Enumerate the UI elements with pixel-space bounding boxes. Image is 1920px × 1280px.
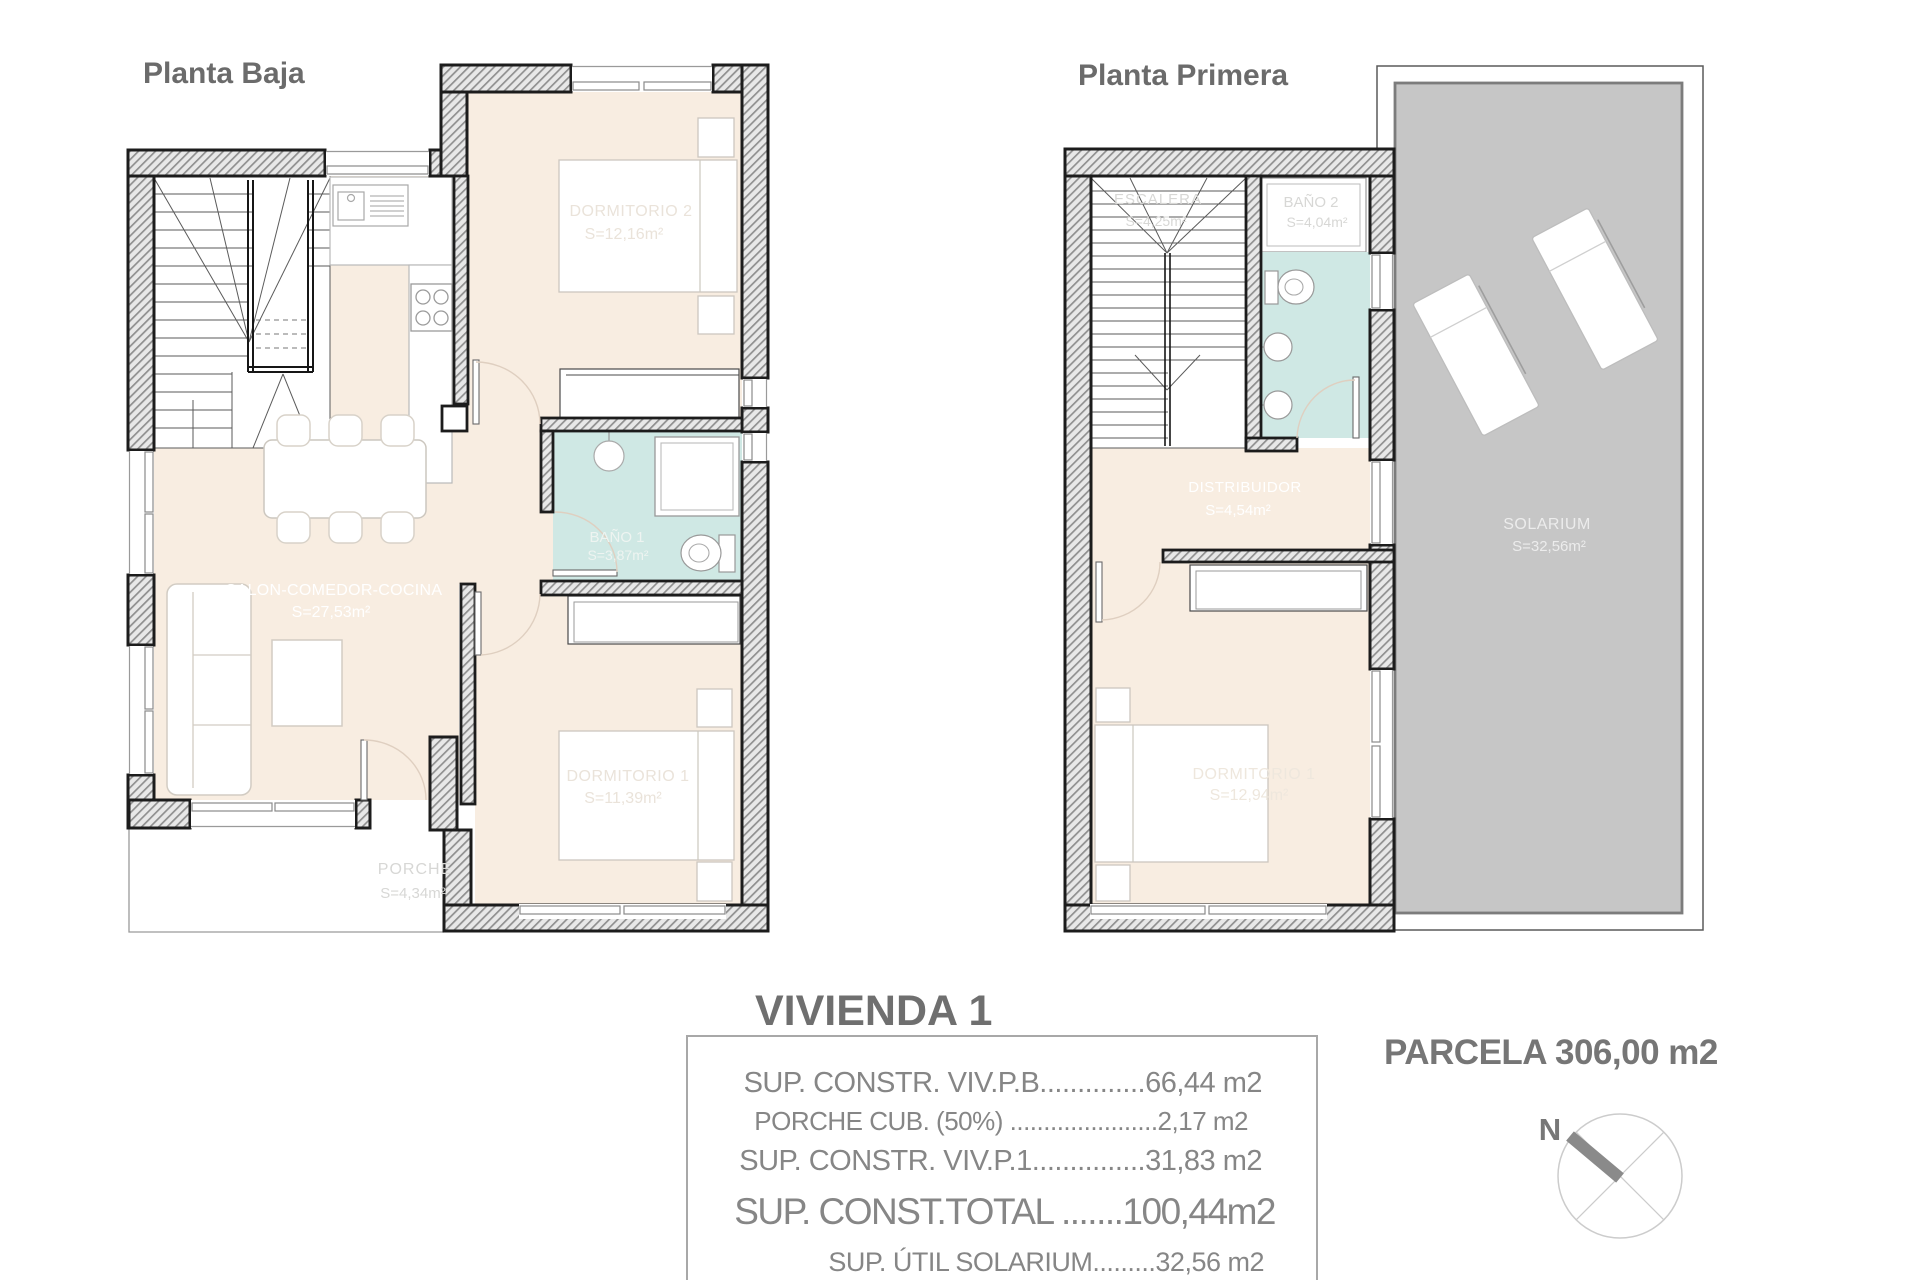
svg-text:S=12,94m²: S=12,94m² [1210,787,1289,804]
svg-text:DISTRIBUIDOR: DISTRIBUIDOR [1188,479,1302,496]
svg-text:PORCHE: PORCHE [378,861,452,878]
svg-text:S=3,87m²: S=3,87m² [587,547,648,563]
svg-text:S=11,39m²: S=11,39m² [584,790,662,807]
svg-text:SUP. CONSTR. VIV.P.B..........: SUP. CONSTR. VIV.P.B..............66,44 … [744,1067,1262,1099]
svg-text:DORMITORIO 1: DORMITORIO 1 [1192,766,1315,783]
svg-text:PORCHE CUB. (50%) ............: PORCHE CUB. (50%) ......................… [754,1106,1248,1136]
svg-text:Planta Primera: Planta Primera [1078,59,1288,92]
svg-text:S=12,16m²: S=12,16m² [585,226,664,243]
svg-text:S=4,04m²: S=4,04m² [1286,214,1347,230]
svg-text:DORMITORIO 1: DORMITORIO 1 [566,768,689,785]
svg-text:SOLARIUM: SOLARIUM [1503,516,1591,533]
svg-text:PARCELA 306,00 m2: PARCELA 306,00 m2 [1384,1033,1718,1072]
svg-text:S=4,25m²: S=4,25m² [1125,213,1186,229]
svg-text:DORMITORIO 2: DORMITORIO 2 [569,203,692,220]
svg-text:SUP. CONST.TOTAL .......100,44: SUP. CONST.TOTAL .......100,44m2 [734,1191,1275,1232]
svg-text:N: N [1539,1112,1561,1147]
svg-text:SUP. ÚTIL SOLARIUM.........32,: SUP. ÚTIL SOLARIUM.........32,56 m2 [828,1246,1264,1277]
svg-text:Planta Baja: Planta Baja [143,57,305,90]
svg-text:S=32,56m²: S=32,56m² [1512,538,1586,555]
svg-text:S=4,54m²: S=4,54m² [1205,502,1270,519]
svg-text:S=27,53m²: S=27,53m² [292,604,371,621]
svg-text:S=4,34m²: S=4,34m² [380,885,445,902]
svg-text:VIVIENDA 1: VIVIENDA 1 [755,987,992,1035]
svg-text:SUP. CONSTR. VIV.P.1..........: SUP. CONSTR. VIV.P.1...............31,83… [739,1145,1262,1177]
svg-text:SALON-COMEDOR-COCINA: SALON-COMEDOR-COCINA [226,582,443,599]
svg-text:BAÑO 2: BAÑO 2 [1283,194,1338,211]
svg-text:ESCALERA: ESCALERA [1114,191,1202,208]
svg-text:BAÑO 1: BAÑO 1 [589,529,644,546]
